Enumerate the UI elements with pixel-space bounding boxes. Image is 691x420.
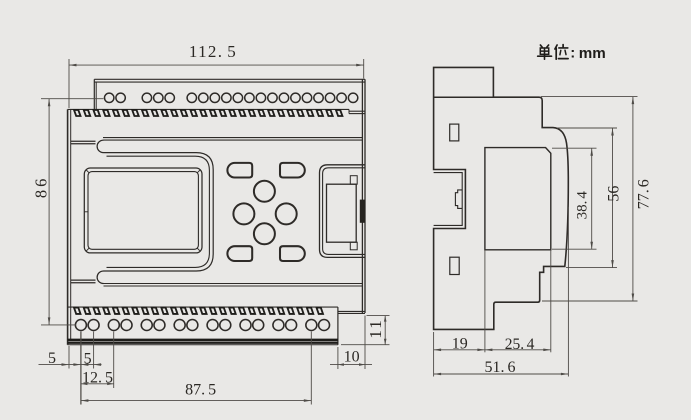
svg-text:87.5: 87.5: [185, 382, 216, 399]
svg-text:38.4: 38.4: [574, 191, 590, 220]
svg-text:51.6: 51.6: [485, 359, 516, 376]
svg-text:12.5: 12.5: [82, 370, 113, 387]
svg-text:mm: mm: [579, 45, 606, 62]
svg-text:77.6: 77.6: [636, 179, 653, 209]
svg-text:56: 56: [605, 186, 622, 202]
svg-text::: :: [570, 44, 575, 61]
svg-text:5: 5: [84, 350, 92, 367]
svg-text:112.5: 112.5: [189, 42, 237, 61]
svg-text:10: 10: [344, 348, 360, 365]
svg-text:19: 19: [452, 335, 468, 352]
svg-text:11: 11: [366, 318, 385, 338]
svg-text:86: 86: [32, 176, 51, 199]
svg-text:25.4: 25.4: [505, 336, 535, 353]
svg-text:5: 5: [48, 350, 56, 367]
